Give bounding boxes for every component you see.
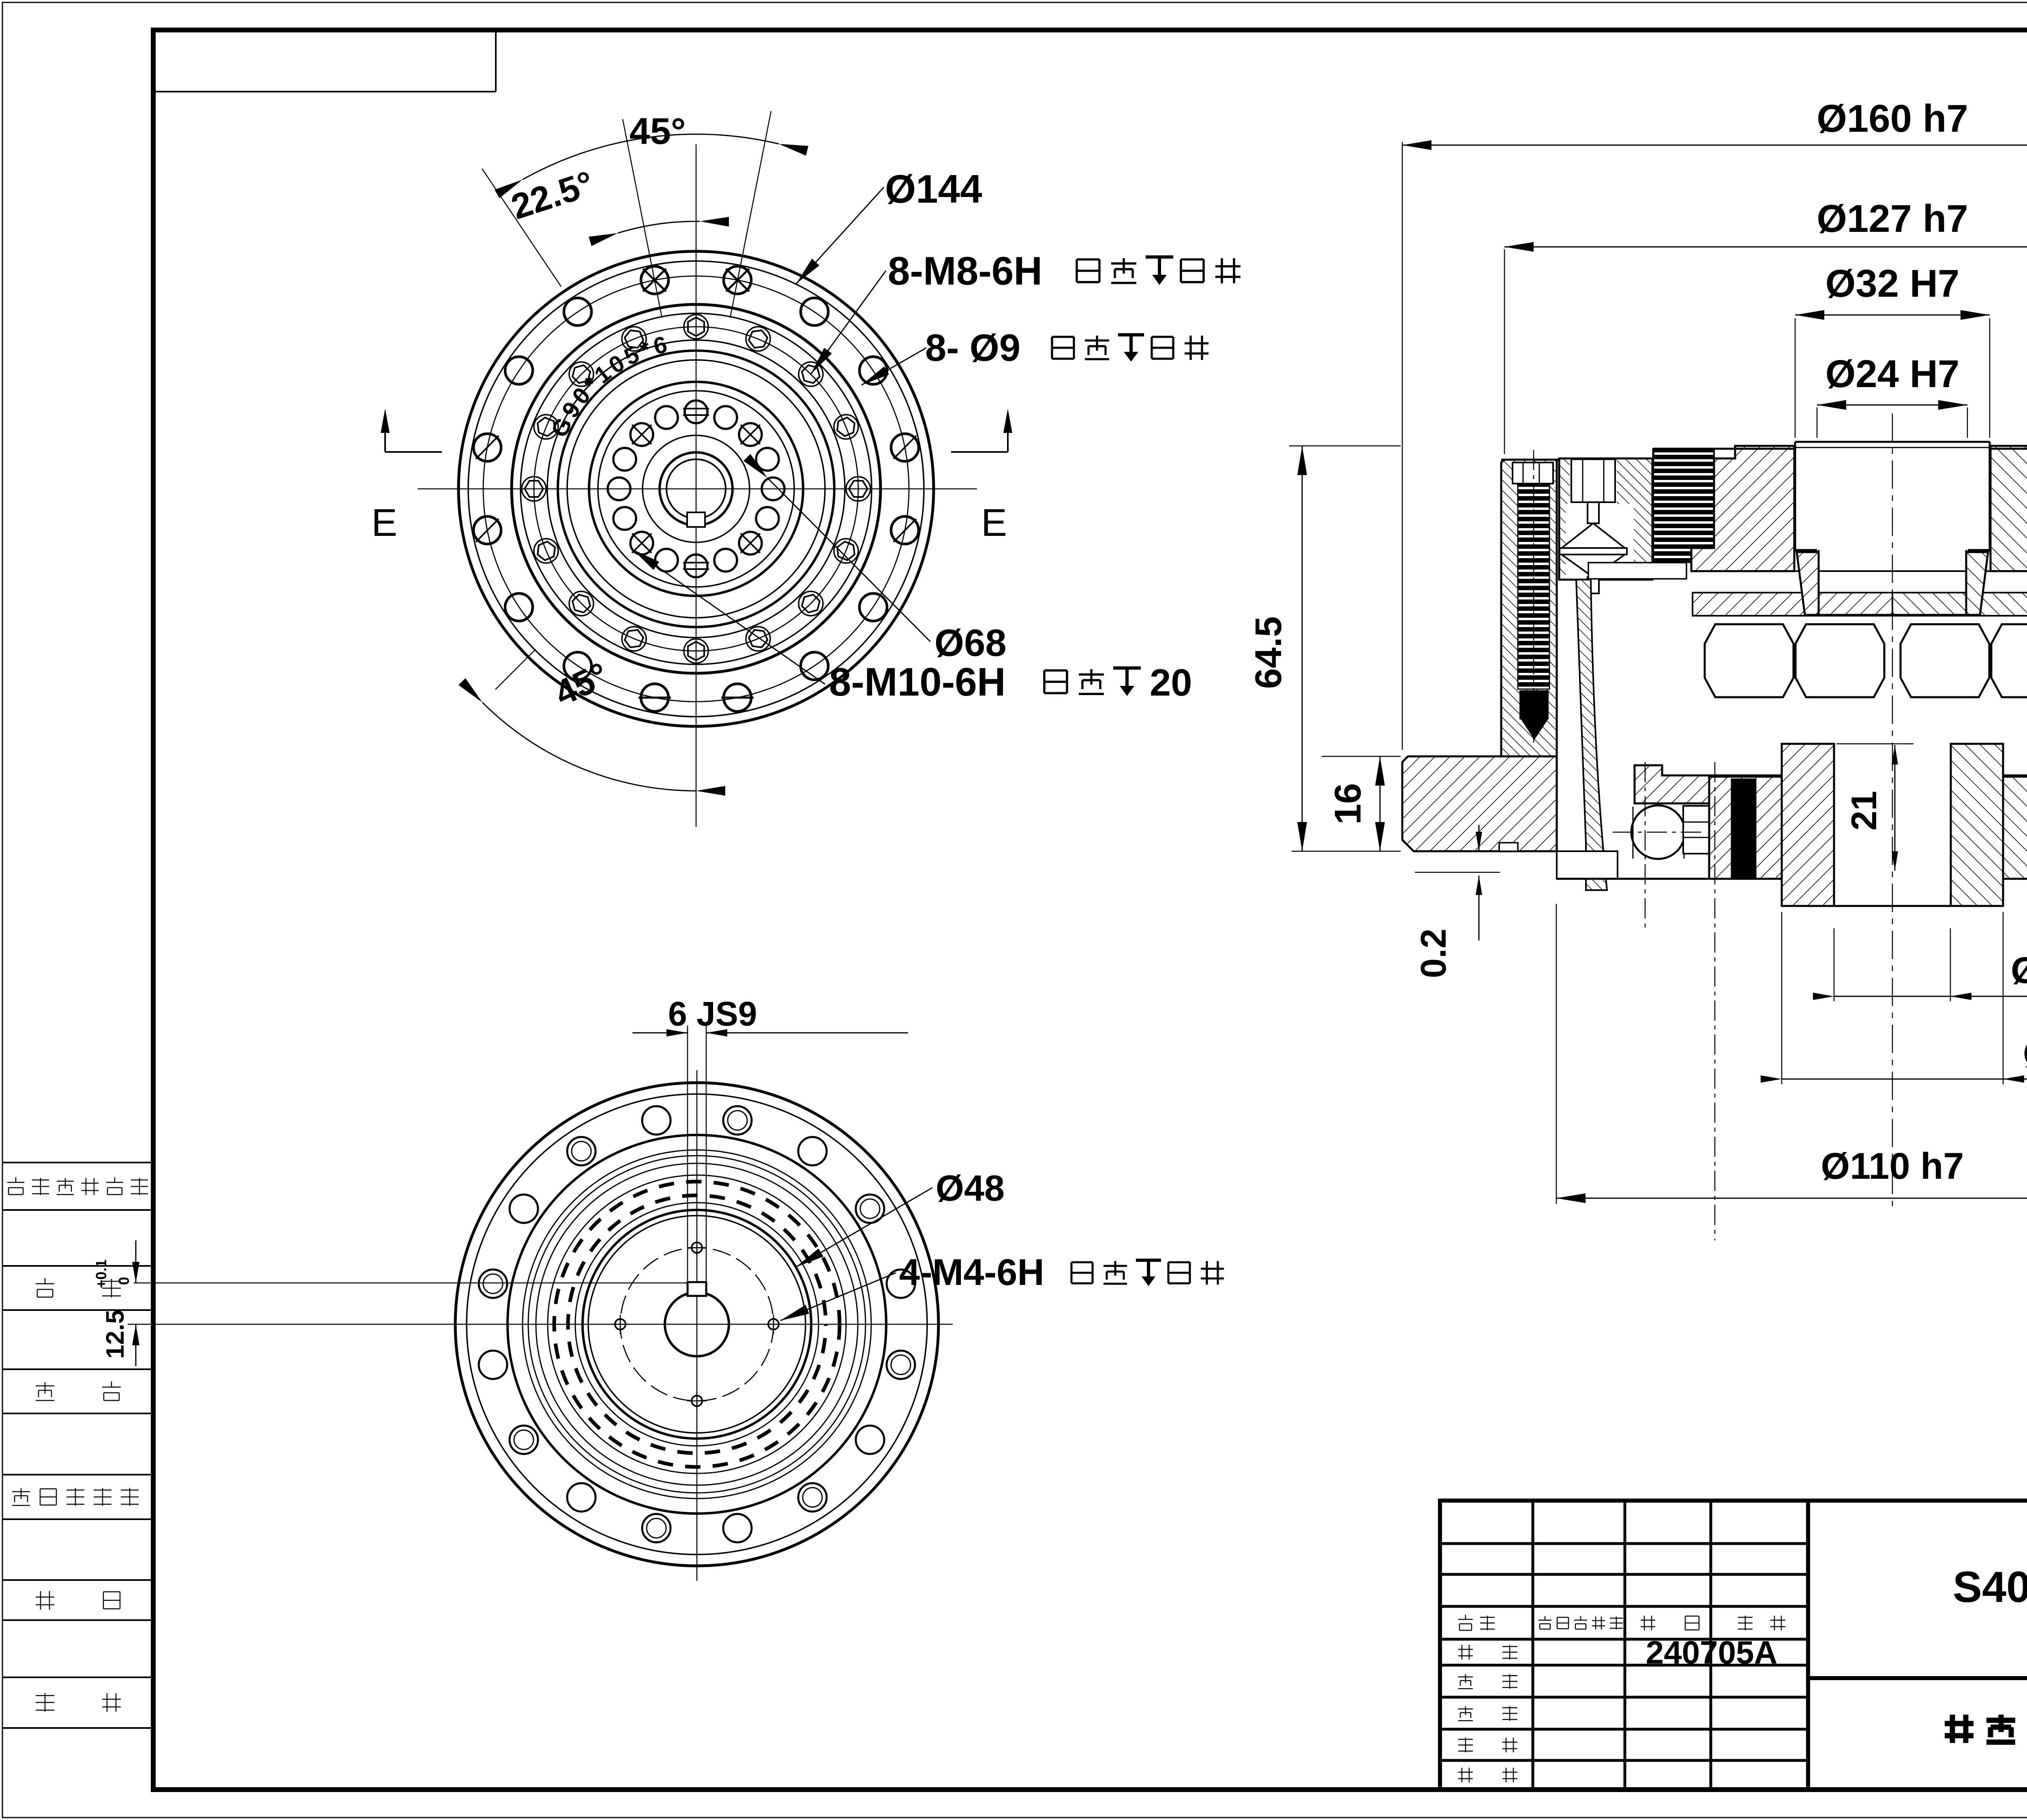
svg-text:+0.1: +0.1 <box>93 1259 109 1288</box>
svg-text:Ø127 h7: Ø127 h7 <box>1817 197 1968 240</box>
svg-text:Ø68: Ø68 <box>934 621 1007 664</box>
svg-text:0: 0 <box>116 1277 132 1285</box>
svg-text:Ø24 H7: Ø24 H7 <box>1826 352 1960 396</box>
svg-text:Ø160 h7: Ø160 h7 <box>1817 97 1968 140</box>
svg-text:8-M10-6H: 8-M10-6H <box>829 659 1006 704</box>
svg-text:8- Ø9: 8- Ø9 <box>925 326 1020 369</box>
svg-text:Ø32 H7: Ø32 H7 <box>1826 262 1960 305</box>
svg-text:6 JS9: 6 JS9 <box>668 995 757 1033</box>
svg-text:E: E <box>981 501 1007 544</box>
svg-text:Ø110 h7: Ø110 h7 <box>1821 1146 1964 1187</box>
svg-text:Ø19 H7: Ø19 H7 <box>2011 950 2027 991</box>
svg-text:Ø144: Ø144 <box>885 167 982 211</box>
svg-text:0.2: 0.2 <box>1413 929 1453 978</box>
svg-text:8-M8-6H: 8-M8-6H <box>888 248 1042 293</box>
svg-text:240705A: 240705A <box>1646 1634 1778 1670</box>
svg-text:4-M4-6H: 4-M4-6H <box>899 1252 1044 1293</box>
svg-text:E: E <box>371 501 397 544</box>
svg-text:S40: S40 <box>1953 1562 2027 1611</box>
svg-text:20: 20 <box>1150 661 1192 704</box>
svg-text:21: 21 <box>1844 791 1884 831</box>
svg-text:Ø36: Ø36 <box>2023 1034 2027 1074</box>
svg-text:64.5: 64.5 <box>1248 616 1289 689</box>
svg-text:Ø48: Ø48 <box>936 1168 1005 1209</box>
svg-text:12.5: 12.5 <box>101 1310 129 1359</box>
svg-text:45°: 45° <box>629 111 686 152</box>
svg-text:16: 16 <box>1327 783 1369 824</box>
